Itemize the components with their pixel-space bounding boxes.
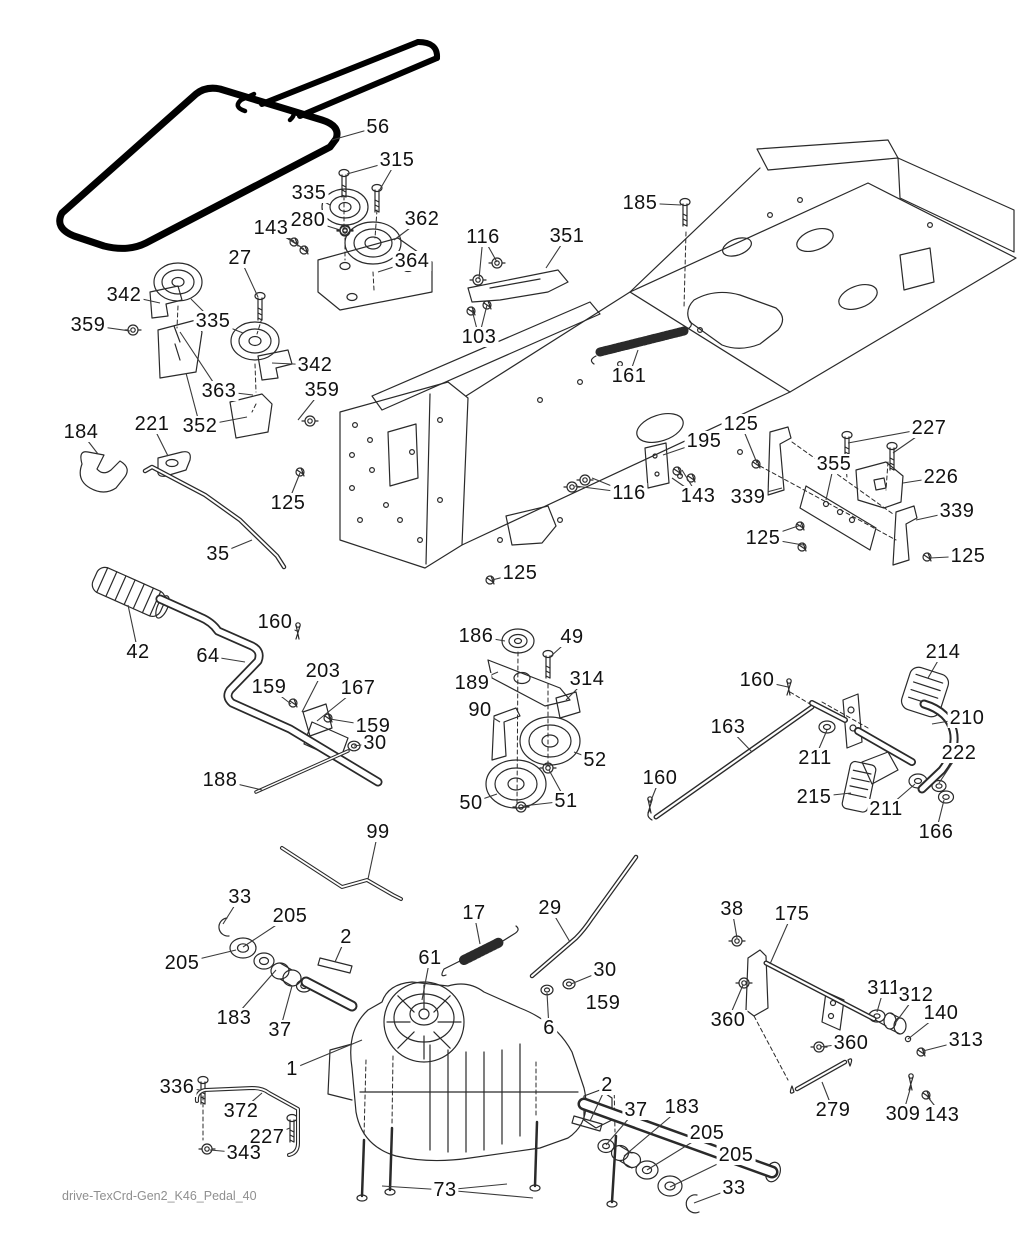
callout-360: 360 bbox=[832, 1033, 871, 1053]
callout-99: 99 bbox=[364, 822, 391, 842]
callout-35: 35 bbox=[204, 544, 231, 564]
callout-2: 2 bbox=[338, 927, 354, 947]
callout-49: 49 bbox=[558, 627, 585, 647]
callout-37: 37 bbox=[266, 1020, 293, 1040]
callout-37: 37 bbox=[622, 1100, 649, 1120]
callout-183: 183 bbox=[663, 1097, 702, 1117]
callout-125: 125 bbox=[722, 414, 761, 434]
callout-38: 38 bbox=[718, 899, 745, 919]
callout-185: 185 bbox=[621, 193, 660, 213]
callout-30: 30 bbox=[591, 960, 618, 980]
callout-280: 280 bbox=[289, 210, 328, 230]
callout-6: 6 bbox=[541, 1018, 557, 1038]
callout-163: 163 bbox=[709, 717, 748, 737]
callout-50: 50 bbox=[457, 793, 484, 813]
callout-336: 336 bbox=[158, 1077, 197, 1097]
callout-103: 103 bbox=[460, 327, 499, 347]
callout-227: 227 bbox=[910, 418, 949, 438]
callout-167: 167 bbox=[339, 678, 378, 698]
callout-279: 279 bbox=[814, 1100, 853, 1120]
callout-51: 51 bbox=[552, 791, 579, 811]
callout-143: 143 bbox=[923, 1105, 962, 1125]
callout-203: 203 bbox=[304, 661, 343, 681]
callout-90: 90 bbox=[466, 700, 493, 720]
diagram-caption: drive-TexCrd-Gen2_K46_Pedal_40 bbox=[62, 1189, 257, 1203]
callout-33: 33 bbox=[720, 1178, 747, 1198]
callout-363: 363 bbox=[200, 381, 239, 401]
callout-210: 210 bbox=[948, 708, 987, 728]
callout-17: 17 bbox=[460, 903, 487, 923]
callout-339: 339 bbox=[938, 501, 977, 521]
callout-125: 125 bbox=[269, 493, 308, 513]
callout-355: 355 bbox=[815, 454, 854, 474]
callout-315: 315 bbox=[378, 150, 417, 170]
callout-211: 211 bbox=[867, 799, 904, 819]
callout-205: 205 bbox=[271, 906, 310, 926]
callout-339: 339 bbox=[729, 487, 768, 507]
callout-160: 160 bbox=[641, 768, 680, 788]
callout-183: 183 bbox=[215, 1008, 254, 1028]
callout-222: 222 bbox=[940, 743, 979, 763]
callout-215: 215 bbox=[795, 787, 834, 807]
callout-364: 364 bbox=[393, 251, 432, 271]
callout-221: 221 bbox=[133, 414, 172, 434]
callout-335: 335 bbox=[194, 311, 233, 331]
callout-211: 211 bbox=[796, 748, 833, 768]
callout-359: 359 bbox=[303, 380, 342, 400]
callout-362: 362 bbox=[403, 209, 442, 229]
callout-205: 205 bbox=[163, 953, 202, 973]
callout-29: 29 bbox=[536, 898, 563, 918]
callout-2: 2 bbox=[599, 1075, 615, 1095]
callout-61: 61 bbox=[416, 948, 443, 968]
callout-188: 188 bbox=[201, 770, 240, 790]
callout-1: 1 bbox=[284, 1059, 300, 1079]
callout-352: 352 bbox=[181, 416, 220, 436]
callout-226: 226 bbox=[922, 467, 961, 487]
callout-335: 335 bbox=[290, 183, 329, 203]
callout-159: 159 bbox=[250, 677, 289, 697]
callout-351: 351 bbox=[548, 226, 587, 246]
callout-27: 27 bbox=[226, 248, 253, 268]
callout-160: 160 bbox=[738, 670, 777, 690]
parts-diagram-page: 5631533528014327362364185116351103342359… bbox=[0, 0, 1024, 1242]
callout-125: 125 bbox=[744, 528, 783, 548]
callout-205: 205 bbox=[717, 1145, 756, 1165]
callout-160: 160 bbox=[256, 612, 295, 632]
callout-195: 195 bbox=[685, 431, 724, 451]
callout-143: 143 bbox=[252, 218, 291, 238]
callout-175: 175 bbox=[773, 904, 812, 924]
callout-64: 64 bbox=[194, 646, 221, 666]
callout-309: 309 bbox=[884, 1104, 923, 1124]
callout-342: 342 bbox=[296, 355, 335, 375]
callout-33: 33 bbox=[226, 887, 253, 907]
callout-56: 56 bbox=[364, 117, 391, 137]
callout-73: 73 bbox=[431, 1180, 458, 1200]
callout-140: 140 bbox=[922, 1003, 961, 1023]
callout-205: 205 bbox=[688, 1123, 727, 1143]
callout-159: 159 bbox=[584, 993, 623, 1013]
callout-186: 186 bbox=[457, 626, 496, 646]
callout-161: 161 bbox=[610, 366, 649, 386]
callout-184: 184 bbox=[62, 422, 101, 442]
callout-125: 125 bbox=[949, 546, 988, 566]
callout-116: 116 bbox=[610, 483, 647, 503]
callout-314: 314 bbox=[568, 669, 607, 689]
callout-342: 342 bbox=[105, 285, 144, 305]
callout-labels: 5631533528014327362364185116351103342359… bbox=[0, 0, 1024, 1242]
callout-214: 214 bbox=[924, 642, 963, 662]
callout-166: 166 bbox=[917, 822, 956, 842]
callout-125: 125 bbox=[501, 563, 540, 583]
callout-343: 343 bbox=[225, 1143, 264, 1163]
callout-42: 42 bbox=[124, 642, 151, 662]
callout-359: 359 bbox=[69, 315, 108, 335]
callout-30: 30 bbox=[361, 733, 388, 753]
callout-116: 116 bbox=[464, 227, 501, 247]
callout-313: 313 bbox=[947, 1030, 986, 1050]
callout-189: 189 bbox=[453, 673, 492, 693]
callout-143: 143 bbox=[679, 486, 718, 506]
callout-360: 360 bbox=[709, 1010, 748, 1030]
callout-372: 372 bbox=[222, 1101, 261, 1121]
callout-52: 52 bbox=[581, 750, 608, 770]
